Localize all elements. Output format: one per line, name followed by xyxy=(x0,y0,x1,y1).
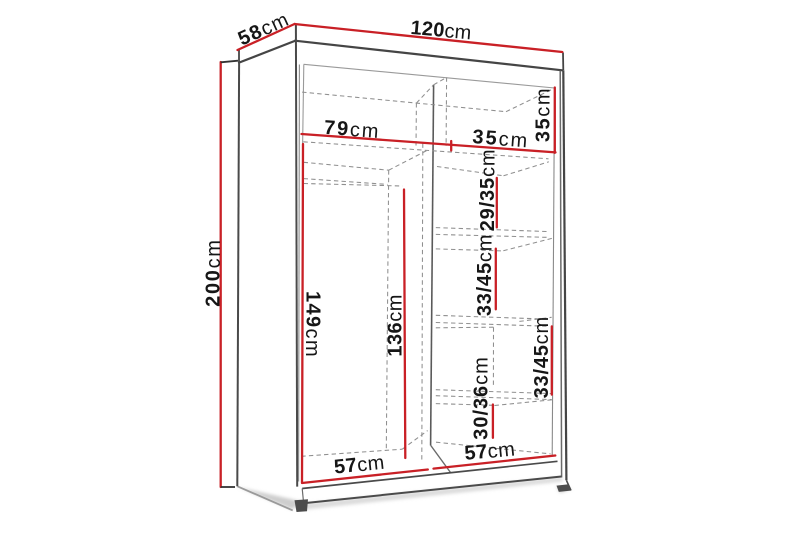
svg-text:35cm: 35cm xyxy=(472,126,530,152)
svg-text:200cm: 200cm xyxy=(203,238,225,307)
svg-text:35cm: 35cm xyxy=(533,87,555,142)
svg-text:33/45cm: 33/45cm xyxy=(531,316,553,398)
svg-text:149cm: 149cm xyxy=(301,291,323,358)
svg-text:79cm: 79cm xyxy=(323,117,381,143)
svg-text:136cm: 136cm xyxy=(385,294,407,357)
svg-text:29/35cm: 29/35cm xyxy=(477,149,499,232)
svg-text:120cm: 120cm xyxy=(410,17,473,44)
svg-text:33/45cm: 33/45cm xyxy=(474,234,496,316)
svg-text:30/36cm: 30/36cm xyxy=(471,356,493,439)
